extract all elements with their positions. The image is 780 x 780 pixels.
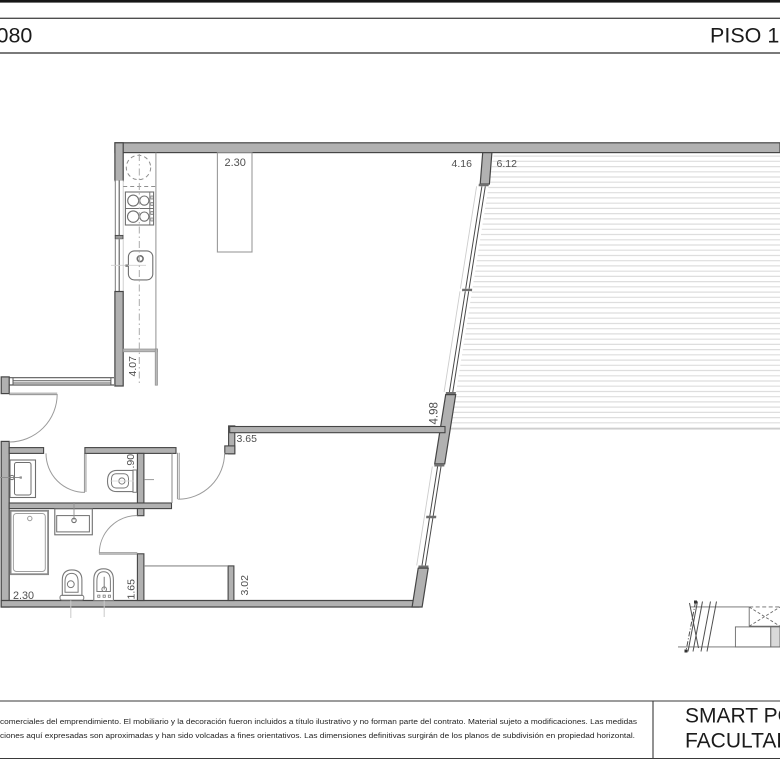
svg-text:6.12: 6.12 — [497, 158, 518, 170]
svg-text:2.30: 2.30 — [225, 157, 246, 169]
svg-text:080: 080 — [0, 24, 32, 48]
svg-text:ciones aquí expresadas son apr: ciones aquí expresadas son aproximadas y… — [0, 731, 635, 740]
svg-text:1.65: 1.65 — [126, 579, 138, 600]
svg-text:FACULTAD: FACULTAD — [685, 729, 780, 752]
svg-text:3.65: 3.65 — [237, 433, 258, 445]
svg-text:4.98: 4.98 — [429, 402, 441, 424]
svg-text:4.07: 4.07 — [127, 356, 139, 377]
svg-text:SMART POINT: SMART POINT — [685, 704, 780, 727]
svg-text:4.16: 4.16 — [452, 158, 473, 170]
svg-text:PISO 12: PISO 12 — [710, 24, 780, 48]
svg-text:3.02: 3.02 — [239, 575, 251, 596]
svg-text:2.30: 2.30 — [13, 590, 34, 602]
svg-text:.90: .90 — [125, 454, 137, 469]
svg-text:comerciales del emprendimiento: comerciales del emprendimiento. El mobil… — [0, 717, 637, 726]
